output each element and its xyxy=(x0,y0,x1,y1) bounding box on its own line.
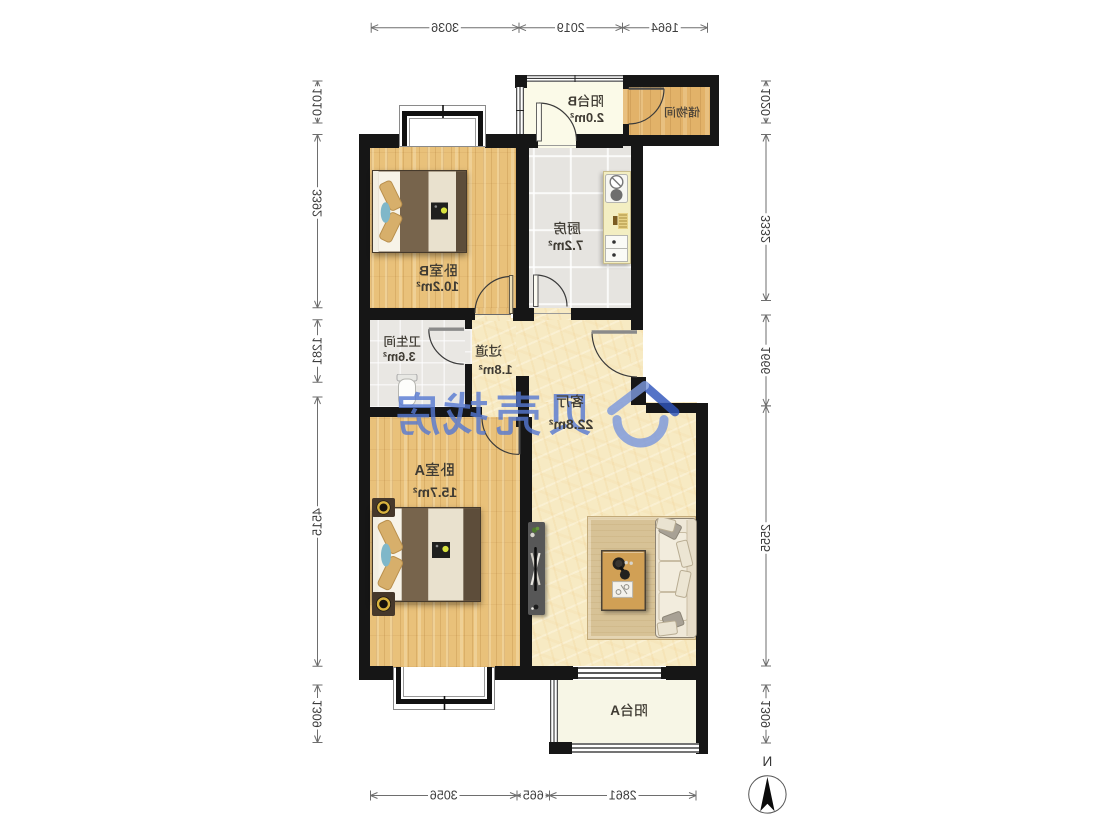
svg-text:1309: 1309 xyxy=(311,700,325,728)
svg-text:3036: 3036 xyxy=(431,21,459,35)
svg-text:1666: 1666 xyxy=(759,347,773,375)
svg-text:1281: 1281 xyxy=(311,337,325,365)
svg-text:4515: 4515 xyxy=(311,508,325,536)
svg-text:3392: 3392 xyxy=(311,189,325,217)
svg-text:665: 665 xyxy=(523,789,544,803)
svg-text:3332: 3332 xyxy=(759,215,773,243)
svg-text:2555: 2555 xyxy=(759,524,773,552)
svg-text:N: N xyxy=(763,754,773,769)
svg-text:1664: 1664 xyxy=(651,21,679,35)
svg-text:3056: 3056 xyxy=(430,789,458,803)
svg-text:1010: 1010 xyxy=(311,88,325,116)
svg-text:2861: 2861 xyxy=(609,789,637,803)
svg-text:1309: 1309 xyxy=(759,700,773,728)
svg-text:1020: 1020 xyxy=(759,88,773,116)
svg-text:2019: 2019 xyxy=(557,21,585,35)
